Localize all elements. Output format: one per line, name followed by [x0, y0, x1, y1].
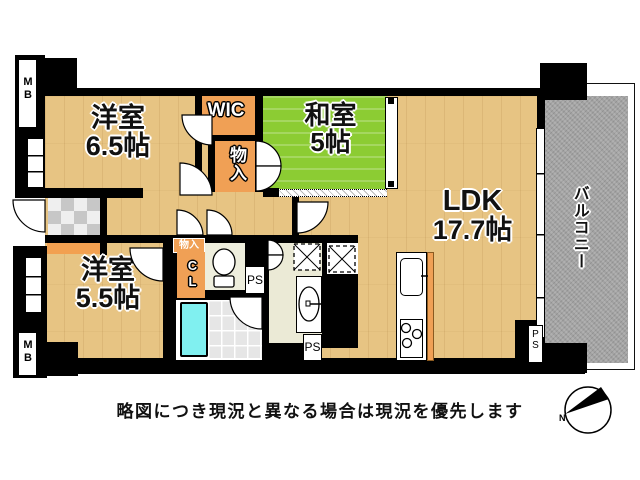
ps-label: PS: [530, 329, 541, 351]
floor-plan: MB MB 物入 CL PS PS PS 洋室 6.5帖 WIC 物入: [0, 0, 640, 480]
pipe-space-balcony: PS: [528, 325, 543, 363]
kitchen-stove: [400, 319, 423, 358]
fusuma-end-cap: [388, 181, 394, 187]
pipe-space-washroom: PS: [303, 334, 322, 361]
wall: [40, 342, 78, 376]
window: [27, 138, 44, 188]
room-name: LDK: [410, 186, 535, 216]
toilet-room-floor: [205, 243, 245, 290]
storage-upper-label: 物入: [224, 146, 249, 182]
pipe-space-toilet: PS: [245, 266, 265, 294]
japanese-room-label: 和室 5帖: [283, 102, 378, 157]
fusuma-end-cap: [388, 98, 394, 104]
room-name: 洋室: [58, 104, 178, 132]
meter-box-top: MB: [17, 58, 38, 129]
wall: [263, 188, 279, 197]
hall-storage-box: 物入: [173, 238, 205, 253]
ps-label: PS: [246, 267, 264, 293]
ps-label: PS: [304, 335, 321, 360]
wall: [100, 198, 107, 255]
kitchen-counter-edge: [427, 252, 434, 361]
washbasin-counter: [296, 276, 322, 333]
hall-storage-label: 物入: [174, 239, 204, 252]
wall: [543, 343, 587, 373]
balcony-pillar: [540, 63, 587, 100]
bathtub: [180, 302, 208, 357]
wall: [537, 96, 545, 130]
wall: [45, 188, 143, 198]
bathroom-tile-floor: [208, 300, 262, 358]
room-size: 6.5帖: [58, 132, 178, 160]
room-name: 洋室: [48, 256, 168, 284]
room-size: 17.7帖: [410, 216, 535, 244]
wall: [208, 141, 215, 192]
balcony-label: バルコニー: [570, 170, 587, 285]
western-room-2-label: 洋室 5.5帖: [48, 256, 168, 313]
disclaimer-text: 略図につき現況と異なる場合は現況を優先します: [60, 397, 580, 422]
wall: [292, 197, 299, 237]
sliding-door-track: [277, 189, 387, 197]
window: [25, 257, 42, 313]
wall: [197, 135, 255, 141]
meter-box-bottom: MB: [17, 331, 38, 377]
entrance-tile: [48, 198, 100, 236]
room-name: 和室: [283, 102, 378, 129]
meter-box-bottom-label: MB: [22, 339, 34, 365]
ldk-label: LDK 17.7帖: [410, 186, 535, 245]
closet-label: CL: [185, 258, 200, 290]
meter-box-top-label: MB: [22, 76, 34, 102]
balcony-window: [536, 128, 545, 338]
fusuma-partition: [385, 97, 398, 189]
closet-box: CL: [177, 252, 205, 298]
room-size: 5帖: [283, 129, 378, 156]
western-room-1-label: 洋室 6.5帖: [58, 104, 178, 161]
wic-label: WIC: [197, 100, 255, 122]
kitchen-sink: [400, 258, 423, 296]
wall: [255, 96, 263, 192]
entrance-door-arc: [13, 200, 45, 232]
refrigerator-niche: [327, 243, 358, 274]
wall: [40, 88, 545, 96]
room-size: 5.5帖: [48, 284, 168, 312]
